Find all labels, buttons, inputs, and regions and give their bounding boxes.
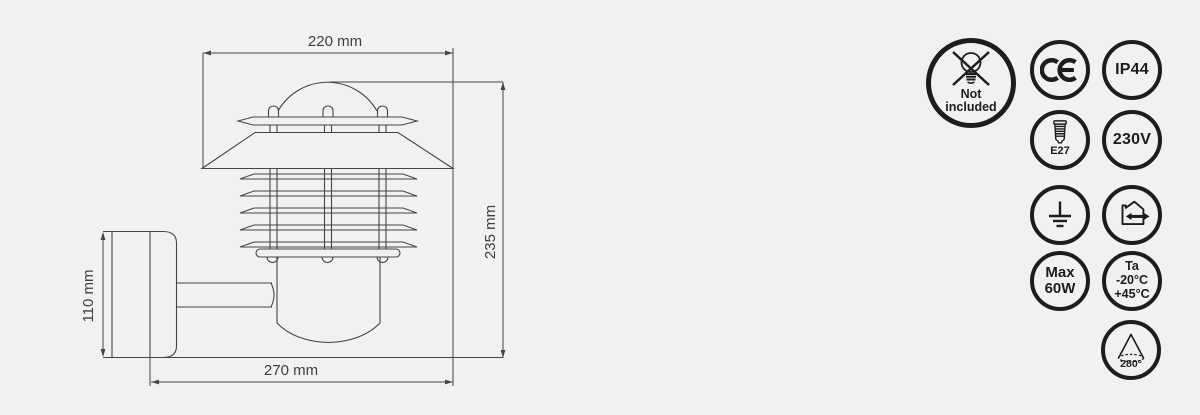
ground-icon [1042, 197, 1078, 233]
louver-slat [240, 208, 417, 213]
ip-rating-label: IP44 [1115, 62, 1149, 79]
badge-voltage: 230V [1102, 110, 1162, 170]
louver-cage [240, 169, 417, 263]
badge-ip-rating: IP44 [1102, 40, 1162, 100]
product-spec-sheet: 220 mm 235 mm 110 mm 270 mm Not included… [0, 0, 1200, 415]
cap-knob [323, 106, 333, 117]
cap-knob [269, 106, 279, 117]
cap-plate [238, 117, 417, 125]
dim-label-width-top: 220 mm [280, 34, 390, 50]
badge-bulb-not-included: Not included [926, 38, 1016, 128]
lamp-head [202, 82, 453, 168]
badge-ce-mark [1030, 40, 1090, 100]
max-wattage-line1: Max [1045, 265, 1076, 281]
dim-label-width-bottom: 270 mm [236, 363, 346, 379]
badge-beam-angle: 280° [1101, 320, 1161, 380]
ambient-temp-line3: +45°C [1114, 288, 1149, 302]
louver-slat [240, 242, 417, 247]
bottom-ring [256, 249, 400, 257]
house-arrow-icon [1113, 196, 1151, 234]
socket-label: E27 [1050, 146, 1070, 158]
badge-max-wattage: Max 60W [1030, 251, 1090, 311]
beam-angle-label: 280° [1105, 359, 1157, 370]
dim-label-height-right: 235 mm [483, 196, 499, 268]
dim-label-height-left: 110 mm [81, 260, 97, 332]
louver-slat [240, 225, 417, 230]
body-and-mount [112, 232, 380, 358]
wall-lamp-technical-drawing [0, 0, 560, 415]
e27-socket-icon [1045, 119, 1075, 147]
badge-socket-e27: E27 [1030, 110, 1090, 170]
shade [202, 133, 453, 169]
cap-knob [378, 106, 388, 117]
ce-mark-icon [1040, 52, 1081, 88]
not-included-line2: included [945, 101, 996, 114]
voltage-label: 230V [1113, 132, 1151, 149]
dimension-lines [101, 48, 506, 386]
dome [278, 82, 377, 111]
ambient-temp-line1: Ta [1114, 260, 1149, 274]
louver-slat [240, 174, 417, 179]
mount-arm [177, 283, 273, 307]
badge-indoor-outdoor [1102, 185, 1162, 245]
louver-slat [240, 191, 417, 196]
lamp-body [277, 257, 380, 343]
ambient-temp-line2: -20°C [1114, 274, 1149, 288]
wall-plate [112, 232, 177, 358]
badge-protective-earth [1030, 185, 1090, 245]
badge-ambient-temperature: Ta -20°C +45°C [1102, 251, 1162, 311]
max-wattage-line2: 60W [1045, 281, 1076, 297]
